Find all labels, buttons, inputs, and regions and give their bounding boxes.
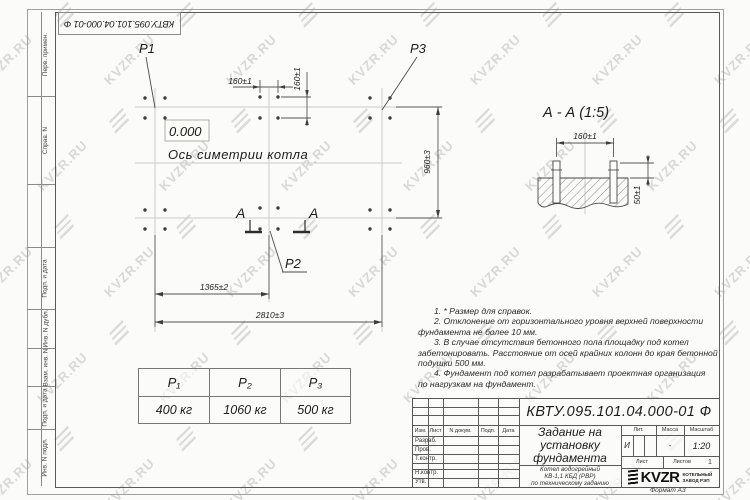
document-subtitle-line: КВ-1,1 КБД (РВР) [544,473,595,480]
document-title-line: Задание на [538,426,602,439]
frame-label: Подп. и дата [42,259,49,297]
col-podp: Подп. [478,425,498,436]
frame-label: Взам. инв. N [42,348,49,386]
row-tkontr: Т.контр. [415,456,437,462]
document-subtitle-line: по техническому заданию [531,480,609,487]
frame-label: Справ. N [42,126,49,153]
sheet-label: Лист [621,456,663,468]
technical-notes: 1. * Размер для справок. 2. Отклонение о… [418,306,720,389]
designation-flipped-box: КВТУ.095.101.04.000-01 Ф [58,12,181,35]
note-line: забетонировать. Расстояние от осей крайн… [418,348,720,358]
row-utv: Утв. [415,479,426,485]
frame-cell-podp-data-1: Подп. и дата [27,247,55,310]
scale-header: Масштаб [684,425,719,435]
frame-label: Перв. примен. [42,32,49,75]
frame-cell-perv-primen: Перв. примен. [27,12,55,97]
note-line: 1. * Размер для справок. [418,306,720,316]
frame-label: Подп. и дата [42,388,49,426]
load-table-value: 500 кг [280,396,350,423]
sheets-count: 1 [701,456,719,468]
col-list: Лист [428,425,443,436]
load-table: P₁ P₂ P₃ 400 кг 1060 кг 500 кг [138,368,351,424]
frame-cell-vzam-inv: Взам. инв. N [27,348,55,387]
note-line: фундамента не более 10 мм. [418,327,720,337]
load-table-header: P₃ [280,369,350,396]
document-title-line: установку [540,439,600,452]
frame-cell-inv-dubl: Инв. N дубл. [27,309,55,349]
company-name: KVZR [641,469,680,486]
frame-label: Инв. N дубл. [42,310,49,348]
company-sub-line: ЗАВОД РЭП [682,478,712,483]
frame-label: Инв. N подл. [42,438,49,476]
row-nkontr: Н.контр. [415,470,438,476]
note-line: 4. Фундамент под котел разрабатывает про… [418,368,720,378]
document-title-line: фундамента [533,452,607,465]
load-table-value: 1060 кг [209,396,280,423]
scale-value: 1:20 [684,435,719,456]
row-prov: Пров. [415,447,431,453]
drawing-sheet: KVZR.RUKVZR.RUKVZR.RUKVZR.RUKVZR.RUKVZR.… [0,0,750,500]
note-line: подушки 500 мм. [418,358,720,368]
title-block: КВТУ.095.101.04.000-01 Ф Изм. Лист N док… [412,398,720,488]
load-table-header: P₂ [209,369,280,396]
mass-header: Масса [656,425,684,435]
mass-value: - [656,435,684,456]
frame-cell-sprav-n: Справ. N [27,96,55,185]
lit-value: И [621,435,633,456]
frame-cell-inv-podl: Инв. N подл. [27,429,55,486]
load-table-header: P₁ [139,369,209,396]
format-label: Формат А3 [650,487,686,494]
document-subtitle: Котел водогрейный КВ-1,1 КБД (РВР) по те… [519,465,621,487]
company-sub-line: КОТЕЛЬНЫЙ [682,472,712,477]
lit-header: Лит. [621,425,656,435]
sheets-label: Листов [663,456,701,468]
col-docnum: N докум. [443,425,478,436]
drawing-designation: КВТУ.095.101.04.000-01 Ф [519,399,719,425]
kvzr-logo-icon [628,469,638,485]
frame-cell-blank [27,184,55,248]
note-line: 3. В случае отсутствия бетонного пола пл… [418,337,720,347]
row-razrab: Разраб. [415,438,437,444]
document-title: Задание на установку фундамента [519,425,621,465]
col-data: Дата [498,425,519,436]
designation-flipped-text: КВТУ.095.101.04.000-01 Ф [64,18,174,29]
frame-cell-podp-data-2: Подп. и дата [27,386,55,430]
document-subtitle-line: Котел водогрейный [540,466,600,473]
load-table-value: 400 кг [139,396,209,423]
note-line: по нагрузкам на фундамент. [418,379,720,389]
company-logo: KVZR КОТЕЛЬНЫЙ ЗАВОД РЭП [621,468,719,487]
col-izm: Изм. [413,425,428,436]
note-line: 2. Отклонение от горизонтального уровня … [418,316,720,326]
